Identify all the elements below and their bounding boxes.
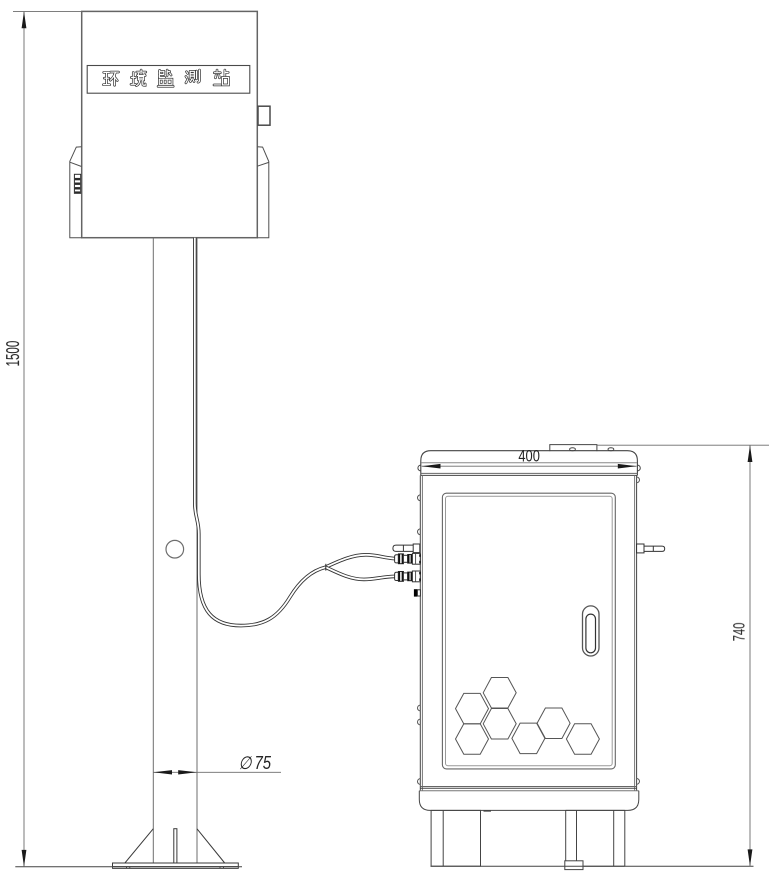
svg-text:1500: 1500 <box>2 341 23 367</box>
svg-text:∅ 75: ∅ 75 <box>239 753 272 773</box>
svg-text:400: 400 <box>518 448 540 466</box>
svg-text:740: 740 <box>730 623 749 642</box>
